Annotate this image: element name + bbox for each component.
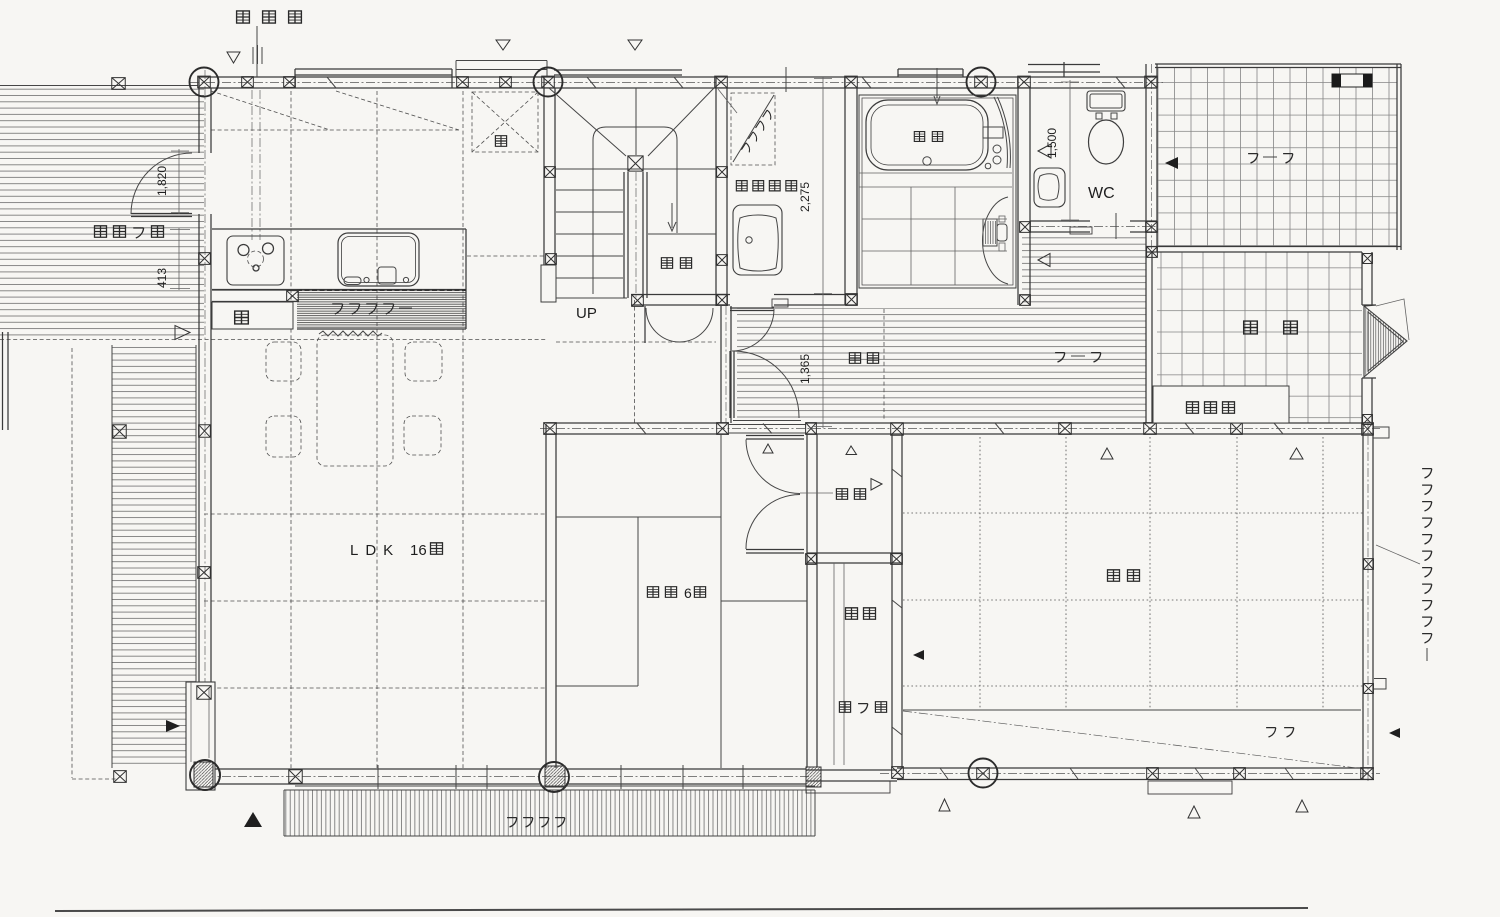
svg-text:16: 16 xyxy=(410,542,427,559)
svg-text:LDK: LDK xyxy=(350,542,400,559)
svg-text:6: 6 xyxy=(684,585,692,601)
svg-text:WC: WC xyxy=(1088,185,1115,202)
svg-text:1,500: 1,500 xyxy=(1045,128,1059,158)
svg-text:1,820: 1,820 xyxy=(155,166,169,196)
svg-text:413: 413 xyxy=(155,268,169,288)
svg-text:1,365: 1,365 xyxy=(798,354,812,384)
svg-text:2,275: 2,275 xyxy=(798,182,812,212)
svg-text:UP: UP xyxy=(576,305,597,322)
